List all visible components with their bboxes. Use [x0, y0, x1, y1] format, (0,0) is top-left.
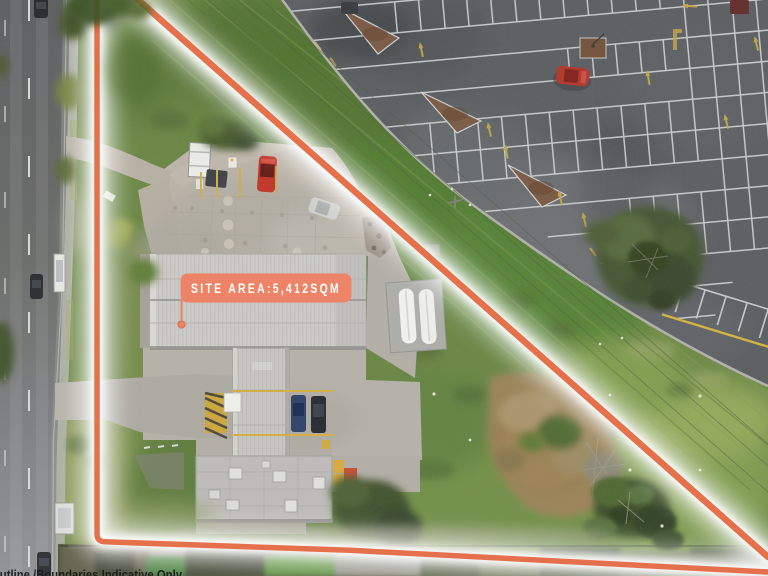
svg-text:SITE AREA:5,412SQM: SITE AREA:5,412SQM: [191, 281, 341, 296]
svg-text:Outline /Boundaries Indicative: Outline /Boundaries Indicative Only: [0, 567, 183, 576]
